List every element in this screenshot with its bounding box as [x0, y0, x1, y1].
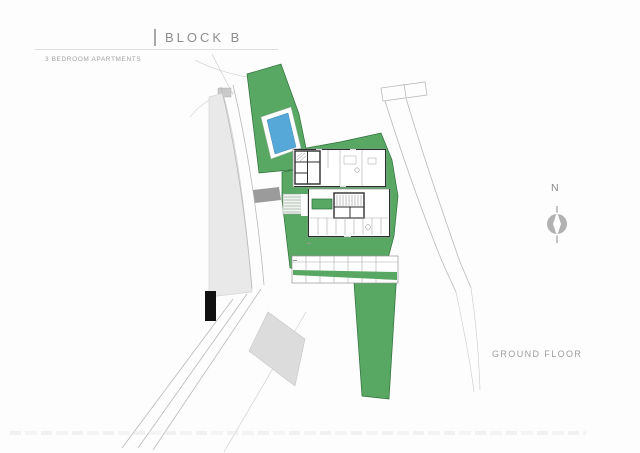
parcel-west	[209, 93, 252, 297]
paved-area	[249, 312, 305, 386]
page-title: BLOCK B	[165, 30, 242, 45]
storage-row	[292, 256, 398, 283]
title-rule	[35, 49, 278, 50]
site-plan-svg	[0, 0, 640, 453]
scale-marker	[205, 291, 216, 321]
planter	[312, 199, 332, 209]
entrance-ramp	[283, 194, 308, 216]
right-road	[381, 82, 480, 392]
title-divider-bar	[154, 29, 156, 46]
driveway-crosswalk	[253, 187, 281, 203]
north-label: N	[551, 182, 559, 194]
apartment-type-label: 3 BEDROOM APARTMENTS	[45, 56, 141, 63]
drawing-sheet: BLOCK B 3 BEDROOM APARTMENTS N GROUND FL…	[0, 0, 640, 453]
north-arrow-icon	[547, 206, 567, 243]
fine-print-line	[10, 431, 586, 435]
building-top-wing	[293, 149, 386, 187]
green-south-strip	[353, 269, 397, 399]
floor-label: GROUND FLOOR	[492, 349, 582, 359]
building-middle-wing	[307, 189, 390, 244]
